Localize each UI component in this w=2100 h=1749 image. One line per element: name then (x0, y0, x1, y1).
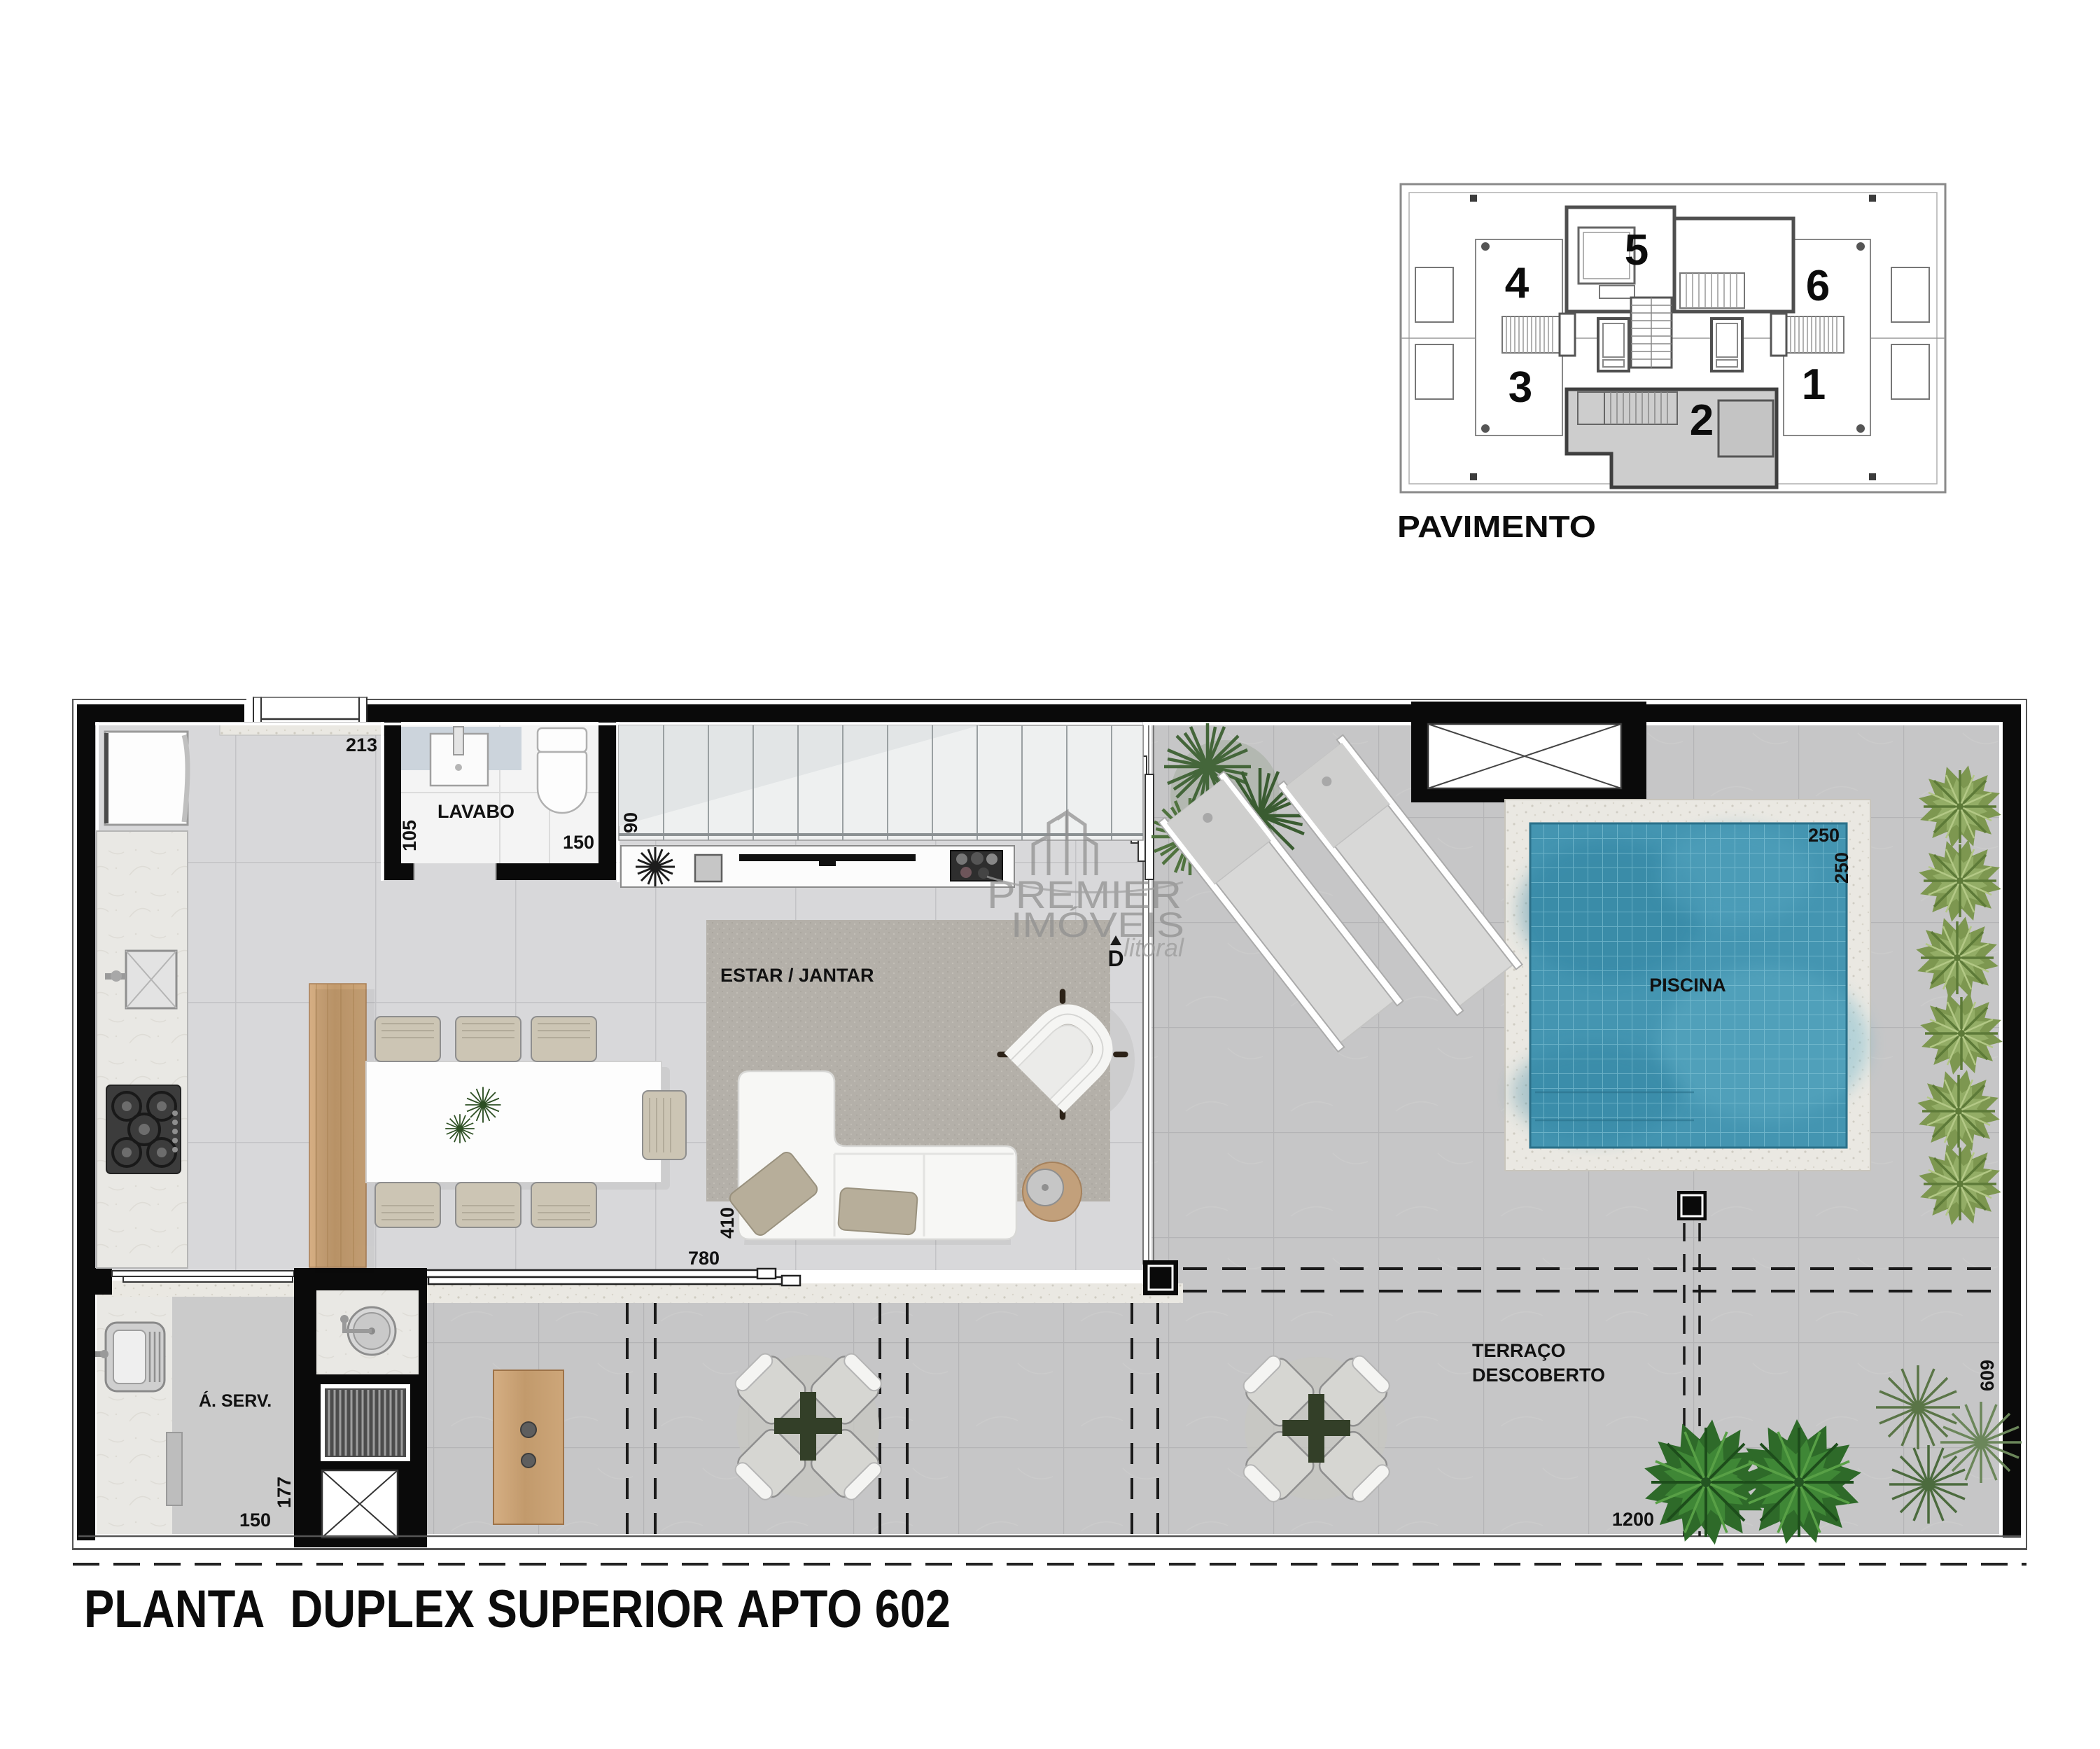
svg-text:3: 3 (1508, 363, 1532, 412)
svg-text:litoral: litoral (1123, 933, 1184, 962)
svg-text:TERRAÇO: TERRAÇO (1472, 1340, 1566, 1361)
svg-text:150: 150 (563, 832, 594, 853)
svg-text:PAVIMENTO: PAVIMENTO (1397, 510, 1596, 544)
svg-text:250: 250 (1808, 825, 1840, 846)
svg-text:410: 410 (717, 1207, 738, 1239)
svg-text:2: 2 (1690, 396, 1714, 445)
svg-text:609: 609 (1977, 1360, 1998, 1391)
svg-text:780: 780 (688, 1248, 720, 1269)
svg-text:105: 105 (399, 820, 420, 851)
svg-text:250: 250 (1831, 852, 1852, 884)
svg-text:DESCOBERTO: DESCOBERTO (1472, 1365, 1605, 1386)
svg-text:1: 1 (1802, 361, 1826, 409)
svg-text:1200: 1200 (1612, 1509, 1654, 1530)
svg-text:PISCINA: PISCINA (1649, 975, 1726, 996)
svg-text:ESTAR / JANTAR: ESTAR / JANTAR (720, 965, 874, 986)
svg-text:150: 150 (239, 1510, 271, 1531)
svg-text:177: 177 (274, 1477, 295, 1508)
svg-text:213: 213 (346, 734, 377, 755)
svg-text:5: 5 (1625, 226, 1648, 274)
svg-text:PLANTA DUPLEX SUPERIOR APTO 6: PLANTA DUPLEX SUPERIOR APTO 602 (84, 1580, 951, 1639)
svg-text:D: D (1107, 946, 1123, 971)
svg-text:Á. SERV.: Á. SERV. (199, 1391, 272, 1411)
svg-text:90: 90 (620, 812, 641, 833)
svg-text:4: 4 (1505, 259, 1529, 307)
svg-text:6: 6 (1806, 262, 1830, 310)
svg-text:LAVABO: LAVABO (437, 801, 514, 822)
